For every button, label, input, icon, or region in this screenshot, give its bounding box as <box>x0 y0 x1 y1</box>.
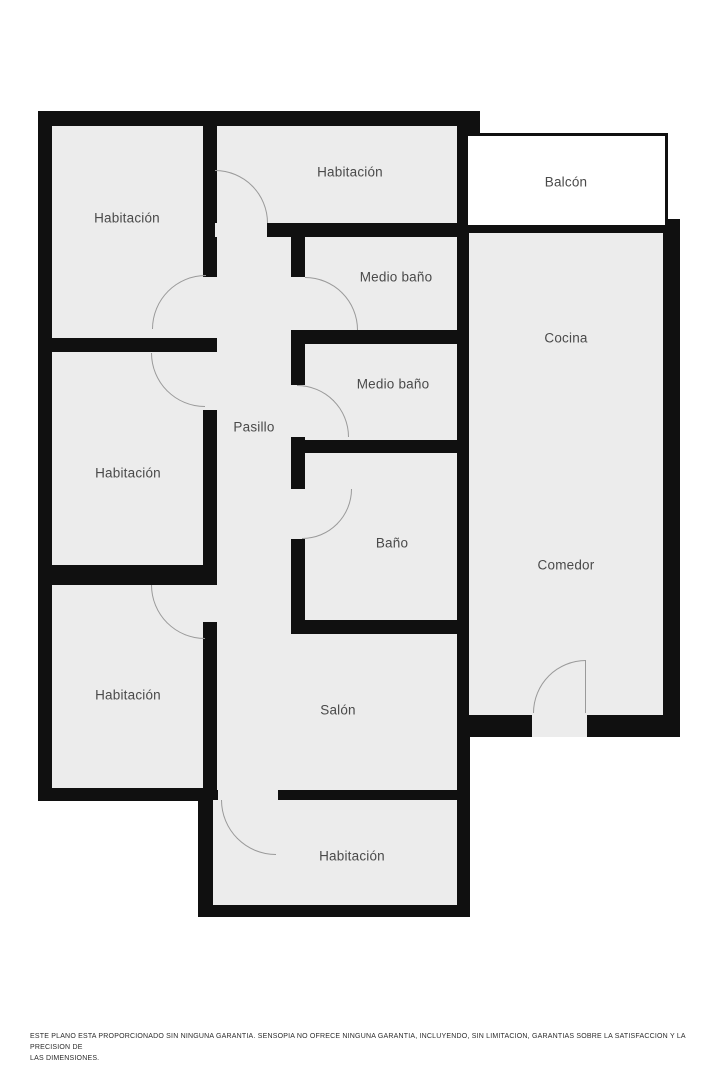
door-gap-habitacion-top-middle <box>215 223 267 237</box>
floor-plan: HabitaciónHabitaciónBalcónMedio bañoCoci… <box>0 0 719 1079</box>
room-label-habitacion-top-left: Habitación <box>94 211 160 226</box>
room-label-medio-bano-1: Medio baño <box>360 270 433 285</box>
room-cocina-comedor <box>469 233 663 715</box>
door-gap-habitacion-bottom-left <box>203 585 217 622</box>
room-label-habitacion-middle-left: Habitación <box>95 466 161 481</box>
room-label-cocina: Cocina <box>544 331 587 346</box>
door-gap-habitacion-middle-left <box>203 352 217 410</box>
room-label-medio-bano-2: Medio baño <box>357 377 430 392</box>
room-pasillo <box>217 237 291 634</box>
door-gap-medio-bano-1 <box>291 277 305 330</box>
room-label-comedor: Comedor <box>538 558 595 573</box>
room-label-habitacion-bottom: Habitación <box>319 849 385 864</box>
disclaimer-text: ESTE PLANO ESTA PROPORCIONADO SIN NINGUN… <box>30 1031 702 1064</box>
room-label-bano: Baño <box>376 536 408 551</box>
room-label-pasillo: Pasillo <box>233 420 274 435</box>
floorplan-canvas: HabitaciónHabitaciónBalcónMedio bañoCoci… <box>0 0 719 1079</box>
door-gap-entrance <box>532 713 587 737</box>
room-label-habitacion-bottom-left: Habitación <box>95 688 161 703</box>
room-label-balcon: Balcón <box>545 175 587 190</box>
room-label-habitacion-top-middle: Habitación <box>317 165 383 180</box>
room-label-salon: Salón <box>320 703 356 718</box>
